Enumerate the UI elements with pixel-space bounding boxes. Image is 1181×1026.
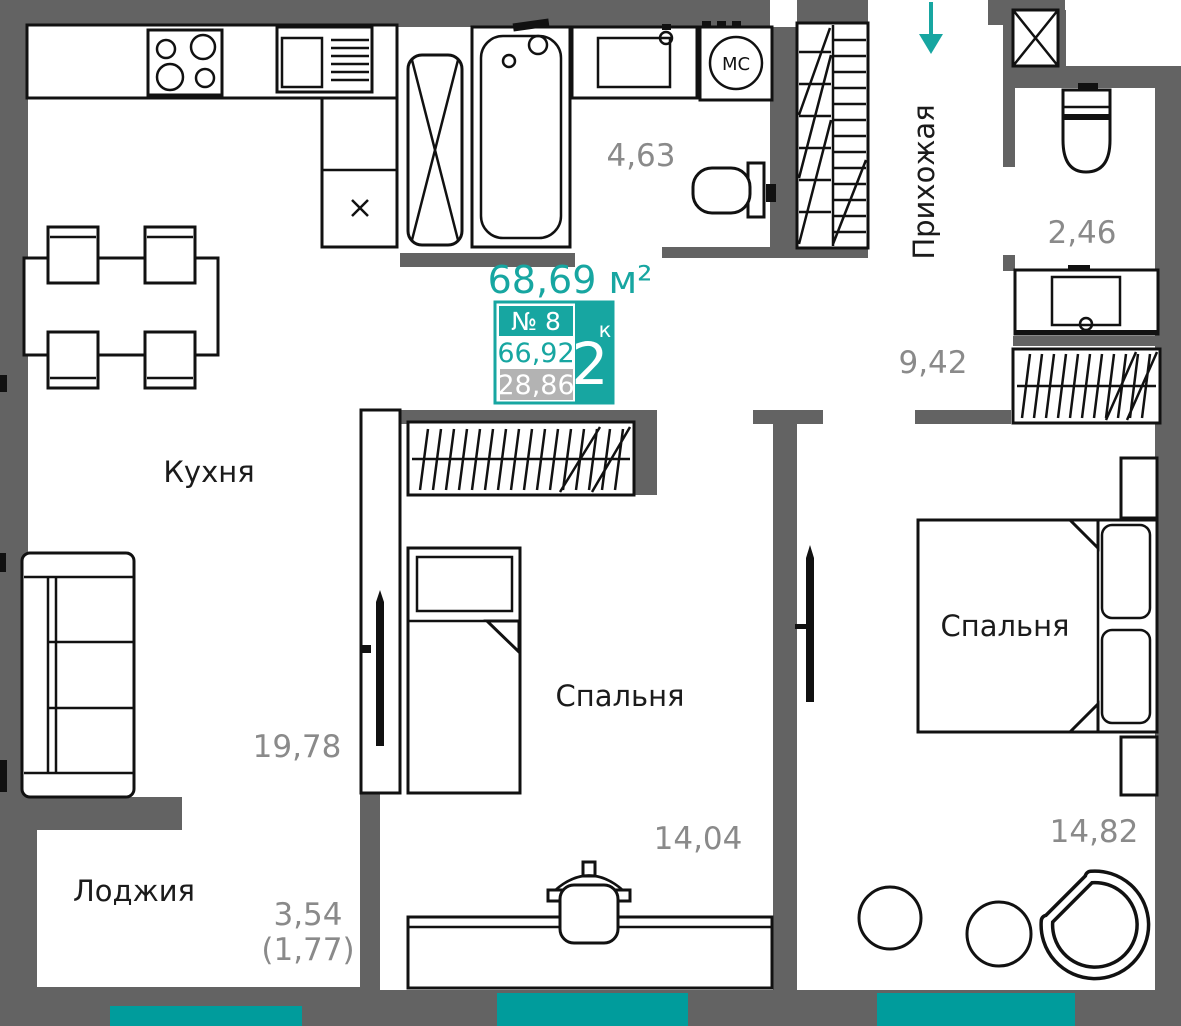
- chair: [145, 227, 195, 283]
- bedroom-right-furniture: [795, 458, 1157, 973]
- window-loggia: [110, 1006, 302, 1026]
- bedroom2-door-leaf: [806, 545, 814, 702]
- loggia-label: Лоджия: [73, 874, 195, 908]
- toilet-bowl: [693, 168, 750, 213]
- wall-bedrooms-divider: [773, 410, 797, 1026]
- hallway-furniture: [1013, 83, 1160, 423]
- wall-right-outer: [1155, 66, 1181, 1026]
- wall-tick: [702, 21, 711, 28]
- window-bedroom-middle: [497, 993, 688, 1026]
- wc-toilet: [1063, 90, 1110, 172]
- nightstand: [1121, 737, 1157, 795]
- stool: [859, 887, 921, 949]
- wall-notch-1: [0, 375, 7, 392]
- flat-number: № 8: [511, 307, 561, 336]
- bathroom-area: 4,63: [606, 138, 675, 174]
- hallway-area: 9,42: [898, 345, 967, 381]
- hallway-vanity-edge: [1015, 330, 1158, 335]
- total-area-title: 68,69 м²: [488, 258, 653, 302]
- wall-vanity-divider: [1013, 336, 1160, 346]
- wall-notch-3: [0, 760, 7, 792]
- wall-top-outer: [0, 0, 770, 27]
- flat-area-total: 66,92: [497, 338, 574, 369]
- wall-bedroom2-top-right: [915, 410, 1011, 424]
- bedroom-right-area: 14,82: [1050, 814, 1139, 850]
- wall-wc-left-stub: [1003, 255, 1015, 271]
- single-bed: [408, 548, 520, 793]
- wall-stairs-left: [770, 27, 797, 258]
- bath-tap-icon: [662, 24, 671, 30]
- chair: [145, 332, 195, 388]
- tub-chair: [1047, 877, 1143, 973]
- chair: [48, 332, 98, 388]
- wall-tick: [717, 21, 726, 28]
- sofa: [22, 553, 134, 797]
- stool: [967, 902, 1031, 966]
- bathroom-furniture: МС: [472, 19, 776, 247]
- kitchen-label: Кухня: [163, 455, 254, 489]
- window-bedroom-right: [877, 993, 1075, 1026]
- bathtub: [472, 27, 570, 247]
- partition-door-handle: [362, 645, 371, 653]
- loggia-area: 3,54: [273, 897, 342, 933]
- washing-machine-label: МС: [722, 54, 750, 75]
- loggia-area-secondary: (1,77): [261, 932, 354, 968]
- nightstand: [1121, 458, 1157, 518]
- wc-area: 2,46: [1047, 215, 1116, 251]
- toilet-wall-tick: [766, 184, 776, 202]
- bedroom-right-label: Спальня: [940, 609, 1069, 643]
- kitchen-counter-corner: [322, 98, 397, 247]
- entrance-arrow-icon: [919, 2, 943, 54]
- desk-chair: [548, 862, 630, 943]
- chair: [48, 227, 98, 283]
- rooms-unit: к: [599, 318, 612, 342]
- flat-area-living: 28,86: [497, 370, 574, 401]
- kitchen-area: 19,78: [253, 729, 342, 765]
- bedroom-middle-area: 14,04: [654, 821, 743, 857]
- partition-door-leaf: [376, 590, 384, 746]
- wc-toilet-tank-band: [1063, 114, 1110, 120]
- wall-notch-2: [0, 553, 6, 572]
- bedroom-middle-label: Спальня: [555, 679, 684, 713]
- floor-plan: МС: [0, 0, 1181, 1026]
- floor-plan-svg: МС: [0, 0, 1181, 1026]
- hallway-label: Прихожая: [907, 104, 941, 259]
- wall-loggia-left: [0, 797, 37, 1008]
- wall-tick: [732, 21, 741, 28]
- plan-badge: 68,69 м² № 8 66,92 28,86 2 к: [488, 258, 653, 403]
